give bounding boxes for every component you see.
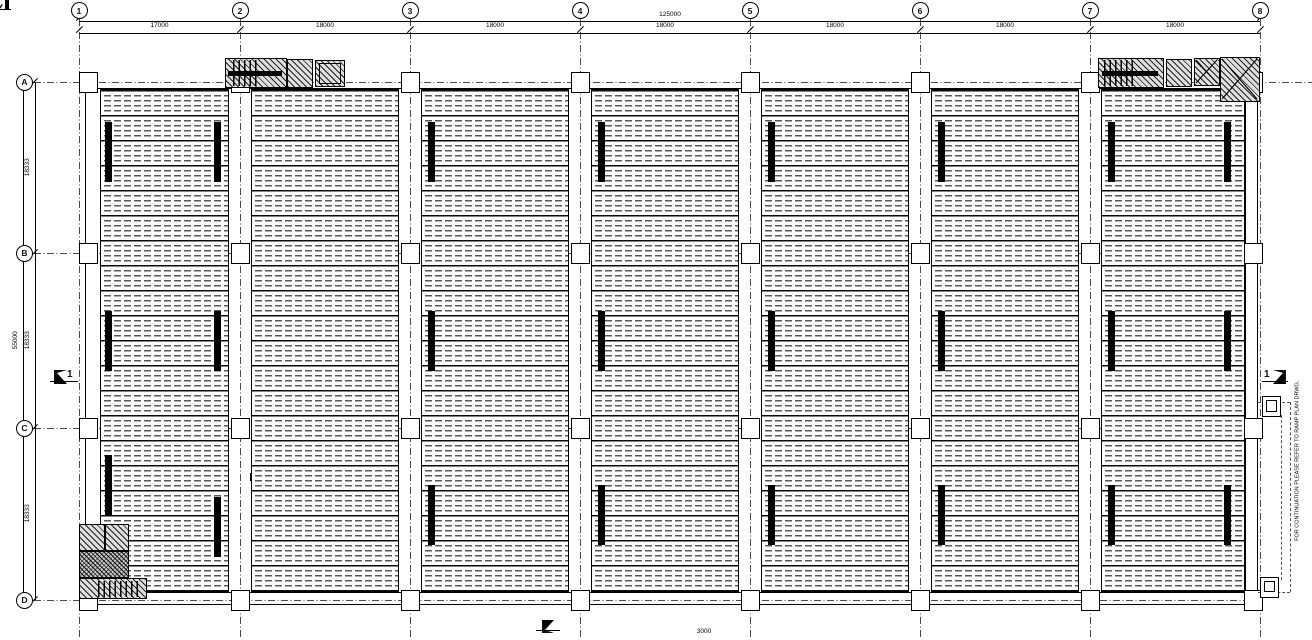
lift-shaft-small bbox=[1194, 58, 1220, 86]
slab-bay-6 bbox=[931, 89, 1079, 592]
column bbox=[1244, 418, 1263, 439]
grid-line-5 bbox=[750, 19, 751, 638]
column bbox=[401, 590, 420, 611]
grid-bubble-A: A bbox=[16, 74, 33, 91]
section-marker-right: 1 bbox=[1260, 368, 1292, 388]
section-marker-bottom bbox=[536, 616, 566, 636]
column bbox=[1081, 243, 1100, 264]
flag-box bbox=[5, 0, 9, 9]
stair-inner-frame bbox=[319, 63, 341, 84]
wall-bar bbox=[768, 311, 775, 371]
column bbox=[571, 418, 590, 439]
section-number: 1 bbox=[67, 370, 73, 380]
column bbox=[911, 243, 930, 264]
column bbox=[1081, 418, 1100, 439]
grid-bubble-7: 7 bbox=[1082, 2, 1099, 19]
column bbox=[571, 243, 590, 264]
stair-block bbox=[287, 59, 313, 88]
wall-bar bbox=[1224, 311, 1231, 371]
stair-arrow bbox=[1102, 71, 1158, 76]
wall-bar bbox=[1108, 485, 1115, 545]
dim-top-bay: 17000 bbox=[135, 23, 185, 30]
column bbox=[231, 243, 250, 264]
ramp-dashed-edge bbox=[1290, 402, 1291, 592]
dim-left-overall: 55000 bbox=[13, 320, 20, 360]
slab-bay-3 bbox=[421, 89, 569, 592]
grid-bubble-6: 6 bbox=[912, 2, 929, 19]
grid-line-7 bbox=[1090, 19, 1091, 638]
lift-shaft-large bbox=[1220, 57, 1260, 102]
column bbox=[79, 72, 98, 93]
ramp-note: FOR CONTINUATION PLEASE REFER TO RAMP PL… bbox=[1295, 371, 1301, 551]
column bbox=[741, 418, 760, 439]
column bbox=[79, 418, 98, 439]
wall-bar bbox=[598, 311, 605, 371]
wall-bar bbox=[768, 122, 775, 182]
wall-bar bbox=[214, 122, 221, 182]
slab-bay-5 bbox=[761, 89, 909, 592]
column bbox=[911, 590, 930, 611]
column bbox=[741, 590, 760, 611]
ramp-dashed-edge bbox=[1281, 415, 1282, 580]
wall-bar bbox=[938, 122, 945, 182]
grid-line-D bbox=[34, 600, 1262, 601]
dim-line-left-rows bbox=[35, 82, 36, 600]
column bbox=[79, 243, 98, 264]
grid-bubble-3: 3 bbox=[402, 2, 419, 19]
column bbox=[401, 72, 420, 93]
dim-top-bay: 18000 bbox=[470, 23, 520, 30]
column bbox=[571, 72, 590, 93]
stair-arrow bbox=[228, 71, 282, 76]
grid-line-2 bbox=[240, 19, 241, 638]
column bbox=[231, 590, 250, 611]
column bbox=[401, 243, 420, 264]
wall-bar bbox=[1108, 122, 1115, 182]
wall-bar bbox=[428, 311, 435, 371]
grid-line-6 bbox=[920, 19, 921, 638]
wall-bar bbox=[105, 122, 112, 182]
grid-bubble-8: 8 bbox=[1252, 2, 1269, 19]
dim-top-overall: 125000 bbox=[600, 12, 740, 19]
slab-bay-2 bbox=[251, 89, 399, 592]
column bbox=[1081, 72, 1100, 93]
flag-base bbox=[0, 9, 11, 10]
dim-left-row: 18333 bbox=[25, 147, 32, 187]
wall-bar bbox=[938, 485, 945, 545]
ramp-column-inner bbox=[1266, 400, 1277, 412]
shaft-cross-icon bbox=[1221, 58, 1258, 100]
slab-bay-4 bbox=[591, 89, 739, 592]
detail-flag bbox=[0, 36, 12, 48]
stair-block bbox=[1166, 59, 1192, 87]
wall-bar bbox=[1224, 485, 1231, 545]
column bbox=[911, 72, 930, 93]
grid-line-3 bbox=[410, 19, 411, 638]
framing-plan-drawing: 125000 55000 3000 RCB1 500/625 x 1500 RC… bbox=[0, 0, 1312, 640]
section-flag-icon bbox=[54, 370, 67, 384]
wall-bar bbox=[598, 485, 605, 545]
ramp-column-inner bbox=[1264, 581, 1275, 592]
wall-bar bbox=[598, 122, 605, 182]
dim-top-bay: 18000 bbox=[1150, 23, 1200, 30]
section-marker-left: 1 bbox=[50, 368, 82, 388]
wall-bar bbox=[214, 311, 221, 371]
grid-bubble-4: 4 bbox=[572, 2, 589, 19]
section-line bbox=[1262, 381, 1288, 382]
detail-flag bbox=[0, 24, 12, 36]
stair-landing bbox=[105, 524, 129, 551]
detail-flag bbox=[0, 12, 12, 24]
dim-top-bay: 18000 bbox=[810, 23, 860, 30]
grid-bubble-5: 5 bbox=[742, 2, 759, 19]
shaft-cross-icon bbox=[1195, 59, 1218, 84]
dim-left-row: 18333 bbox=[25, 320, 32, 360]
stair-landing bbox=[79, 551, 129, 578]
grid-bubble-D: D bbox=[16, 592, 33, 609]
wall-bar bbox=[938, 311, 945, 371]
dim-top-bay: 18000 bbox=[980, 23, 1030, 30]
stair-landing bbox=[79, 524, 105, 551]
dim-top-bay: 18000 bbox=[300, 23, 350, 30]
wall-bar bbox=[1224, 122, 1231, 182]
dim-line-top-bays bbox=[79, 33, 1260, 34]
slab-bay-1 bbox=[100, 89, 229, 592]
dim-left-row: 18333 bbox=[25, 493, 32, 533]
section-number: 1 bbox=[1264, 370, 1270, 380]
wall-bar bbox=[428, 122, 435, 182]
wall-bar bbox=[105, 311, 112, 371]
column bbox=[231, 418, 250, 439]
stair-treads bbox=[98, 581, 140, 597]
wall-bar bbox=[214, 497, 221, 557]
column bbox=[401, 418, 420, 439]
wall-bar bbox=[768, 485, 775, 545]
slab-edge-line bbox=[1245, 89, 1246, 592]
wall-bar bbox=[428, 485, 435, 545]
wall-bar bbox=[1108, 311, 1115, 371]
column bbox=[571, 590, 590, 611]
dim-top-bay: 18000 bbox=[640, 23, 690, 30]
grid-bubble-1: 1 bbox=[71, 2, 88, 19]
grid-bubble-C: C bbox=[16, 420, 33, 437]
slab-edge-line bbox=[1257, 88, 1258, 604]
column bbox=[911, 418, 930, 439]
dim-bottom-ramp: 3000 bbox=[688, 629, 720, 636]
section-line bbox=[536, 630, 560, 631]
grid-bubble-2: 2 bbox=[232, 2, 249, 19]
column bbox=[741, 243, 760, 264]
grid-bubble-B: B bbox=[16, 245, 33, 262]
wall-bar bbox=[105, 455, 112, 515]
grid-line-8 bbox=[1260, 19, 1261, 638]
column bbox=[1244, 243, 1263, 264]
grid-line-4 bbox=[580, 19, 581, 638]
column bbox=[1081, 590, 1100, 611]
column bbox=[741, 72, 760, 93]
